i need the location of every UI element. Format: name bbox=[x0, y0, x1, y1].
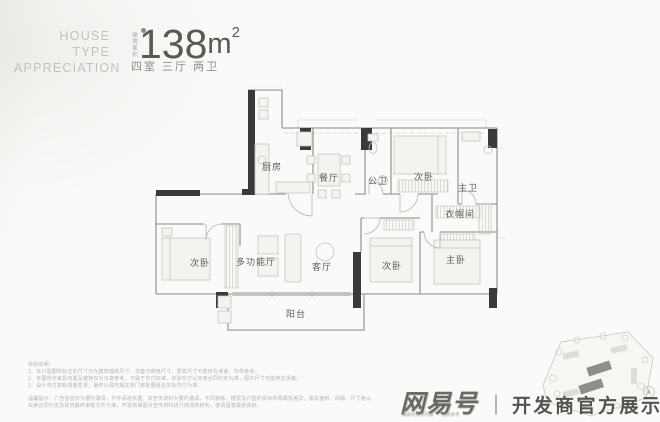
room-label-multifunction: 多功能厅 bbox=[236, 256, 276, 267]
disclaimer-line-1: 1、本户型图所标注的尺寸均为建筑轴线尺寸，非套内使用尺寸，层高尺寸可能存在误差，… bbox=[28, 369, 498, 376]
watermark-subtext-right: 仅供参考 bbox=[442, 412, 460, 418]
room-label-kitchen: 厨房 bbox=[262, 161, 282, 172]
area-label: 建筑面积 bbox=[130, 32, 138, 58]
disclaimer-title: 特别说明： bbox=[28, 362, 498, 369]
eyebrow-line-1: HOUSE bbox=[14, 28, 110, 44]
watermark-text: 开发商官方展示中心 bbox=[512, 391, 660, 418]
layout-summary: 四室 三厅 两卫 bbox=[131, 58, 219, 74]
eyebrow-line-2: TYPE bbox=[14, 44, 110, 60]
eyebrow-title: HOUSE TYPE APPRECIATION bbox=[14, 28, 110, 76]
floorplan-poster: HOUSE TYPE APPRECIATION 建筑面积 138 m 2 四室 … bbox=[0, 0, 660, 422]
room-label-guest-bath: 公卫 bbox=[368, 176, 388, 186]
room-label-balcony: 阳台 bbox=[286, 308, 306, 319]
room-label-bedroom-top: 次卧 bbox=[414, 171, 434, 182]
floor-plan-svg: 厨房 餐厅 公卫 次卧 主卫 衣帽间 次卧 多功能厅 客厅 次卧 主卧 阳台 bbox=[148, 86, 524, 348]
area-superscript: 2 bbox=[232, 24, 240, 41]
bullet-dot-icon bbox=[141, 28, 146, 33]
room-label-master-bath: 主卫 bbox=[458, 182, 478, 193]
room-label-bedroom-mid: 次卧 bbox=[382, 260, 402, 271]
disclaimer-line-2: 2、本图所示家具布置及装饰仅为示意参考，不属于交付标准，实际交付以买卖合同约定为… bbox=[28, 376, 498, 383]
room-label-master-bedroom: 主卧 bbox=[446, 254, 466, 265]
watermark-subtext: 网易号官方内容 仅供参考 bbox=[402, 412, 512, 418]
room-label-living: 客厅 bbox=[312, 261, 332, 272]
floor-plan: 厨房 餐厅 公卫 次卧 主卫 衣帽间 次卧 多功能厅 客厅 次卧 主卧 阳台 bbox=[148, 86, 524, 348]
room-label-cloakroom: 衣帽间 bbox=[445, 208, 475, 219]
eyebrow-line-3: APPRECIATION bbox=[14, 60, 110, 76]
room-label-bedroom-left: 次卧 bbox=[190, 257, 210, 268]
watermark-subtext-left: 网易号官方内容 bbox=[402, 412, 434, 418]
room-label-dining: 餐厅 bbox=[319, 172, 339, 183]
